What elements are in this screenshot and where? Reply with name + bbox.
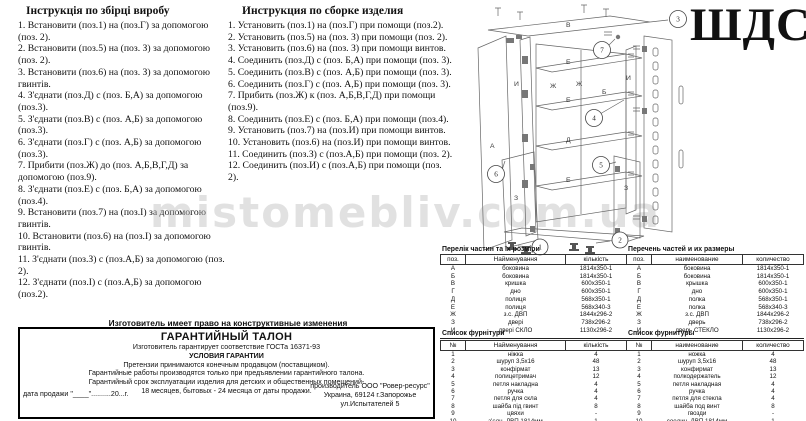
part-pos: В xyxy=(627,280,652,288)
callout-3: 3 xyxy=(670,11,687,28)
hardware-num: 8 xyxy=(627,403,652,410)
hardware-name: петля для стекла xyxy=(652,395,743,402)
hardware-row: 5 петля накладная 4 xyxy=(627,381,804,388)
hardware-qty: 1 xyxy=(743,418,804,421)
instruction-step: 10. Установить (поз.6) на (поз.И) при по… xyxy=(228,137,454,149)
part-name: з.с. ДВП xyxy=(652,311,743,319)
part-pos: З xyxy=(627,319,652,327)
parts-row: Г дно 600х350-1 xyxy=(627,288,804,296)
hardware-num: 8 xyxy=(441,403,466,410)
hardware-row: 1 нiжка 4 xyxy=(441,351,627,359)
part-size-qty: 1814х350-1 xyxy=(566,265,627,273)
instruction-step: 8. З'єднати (поз.Е) с (поз. Б,А) за допо… xyxy=(18,184,230,207)
hardware-num: 6 xyxy=(441,388,466,395)
instructions-ru-list: 1. Установить (поз.1) на (поз.Г) при пом… xyxy=(228,20,454,184)
header-pos: поз. xyxy=(441,255,466,265)
callout-circles: 3 7 4 5 6 1 2 xyxy=(488,11,687,256)
parts-table-ua: Перелік частин та їх розміри поз. Наймен… xyxy=(440,246,627,334)
parts-table-ru-title: Перечень частей и их размеры xyxy=(628,246,804,253)
sale-date-line: дата продажи "____"..........20...г. xyxy=(23,390,128,398)
part-pos: Г xyxy=(441,288,466,296)
header-num: № xyxy=(441,341,466,351)
part-pos: Б xyxy=(441,273,466,281)
instructions-ua-title: Інструкція по збірці виробу xyxy=(26,5,230,17)
part-pos: Ж xyxy=(627,311,652,319)
hardware-row: 5 петля накладна 4 xyxy=(441,381,627,388)
instruction-step: 1. Установить (поз.1) на (поз.Г) при пом… xyxy=(228,20,454,32)
hardware-row: 3 конфiрмат 13 xyxy=(441,366,627,373)
hardware-row: 6 ручка 4 xyxy=(441,388,627,395)
parts-row: Ж з.с. ДВП 1844х296-2 xyxy=(441,311,627,319)
label-shelf-low: Е xyxy=(566,177,571,184)
label-lower-door-left: З xyxy=(514,195,518,202)
manufacturer-address: Украина, 69124 г.Запорожье xyxy=(303,391,437,400)
part-size-qty: 568х350-1 xyxy=(566,296,627,304)
hardware-qty: 4 xyxy=(566,381,627,388)
hardware-num: 10 xyxy=(627,418,652,421)
hardware-name: полкодержатель xyxy=(652,373,743,380)
label-left-door: А xyxy=(490,143,495,150)
hardware-name: полицетримач xyxy=(466,373,566,380)
hardware-num: 5 xyxy=(441,381,466,388)
hardware-name: конфiрмат xyxy=(466,366,566,373)
parts-row: Д полка 568х350-1 xyxy=(627,296,804,304)
part-pos: Д xyxy=(441,296,466,304)
svg-text:7: 7 xyxy=(600,47,604,55)
instruction-step: 7. Прибити (поз.Ж) до (поз. А,Б,В,Г,Д) з… xyxy=(18,160,230,183)
header-qty: кількість xyxy=(566,341,627,351)
hardware-num: 4 xyxy=(441,373,466,380)
hardware-qty: 4 xyxy=(743,351,804,359)
hardware-num: 1 xyxy=(441,351,466,359)
hardware-row: 4 полицетримач 12 xyxy=(441,373,627,380)
part-name: дверь xyxy=(652,319,743,327)
part-size-qty: 1814х350-1 xyxy=(743,273,804,281)
svg-text:2: 2 xyxy=(618,237,622,245)
parts-table-ua-title: Перелік частин та їх розміри xyxy=(442,246,627,253)
part-size-qty: 600х350-1 xyxy=(566,288,627,296)
instruction-step: 12. З'єднати (поз.І) с (поз.А,Б) за допо… xyxy=(18,277,230,300)
label-lower-door-right: З xyxy=(624,185,628,192)
parts-row: З дверь 738х296-2 xyxy=(627,319,804,327)
left-door-panel xyxy=(478,36,512,250)
hardware-name: петля накладная xyxy=(652,381,743,388)
header-qty: кількість xyxy=(566,255,627,265)
part-pos: З xyxy=(441,319,466,327)
part-size-qty: 568х350-1 xyxy=(743,296,804,304)
manufacturer-name: производитель ООО "Ровер-ресурс" xyxy=(303,382,437,391)
part-name: дно xyxy=(652,288,743,296)
part-name: боковина xyxy=(466,265,566,273)
instruction-step: 5. З'єднати (поз.В) с (поз. А,Б) за допо… xyxy=(18,114,230,137)
instruction-step: 8. Соединить (поз.Е) с (поз. Б,А) при по… xyxy=(228,114,454,126)
hardware-table-ru: Список фурнитуры № наименование количест… xyxy=(626,330,804,421)
hardware-num: 7 xyxy=(627,395,652,402)
hardware-name: нiжка xyxy=(466,351,566,359)
hardware-row: 2 шуруп 3,5х16 48 xyxy=(627,358,804,365)
part-name: з.с. ДВП xyxy=(466,311,566,319)
part-size-qty: 600х350-1 xyxy=(743,288,804,296)
hardware-row: 9 цвяхи - xyxy=(441,410,627,417)
glass-door-hinge-marks xyxy=(633,46,640,219)
hardware-num: 5 xyxy=(627,381,652,388)
hinge-detail-marks xyxy=(604,32,612,35)
instruction-step: 6. З'єднати (поз.Г) с (поз. А,Б) за допо… xyxy=(18,137,230,160)
instruction-step: 11. З'єднати (поз.З) с (поз.А,Б) за допо… xyxy=(18,254,230,277)
warranty-card: ГАРАНТИЙНЫЙ ТАЛОН Изготовитель гарантиру… xyxy=(18,327,435,419)
parts-table-ru-header: поз. наименование количество xyxy=(627,255,804,265)
part-size-qty: 1814х350-1 xyxy=(743,265,804,273)
instruction-step: 4. Соединить (поз.Д) с (поз. Б,А) при по… xyxy=(228,55,454,67)
header-qty: количество xyxy=(743,341,804,351)
parts-row: В крышка 600х350-1 xyxy=(627,280,804,288)
hardware-qty: 48 xyxy=(743,358,804,365)
part-size-qty: 568х340-3 xyxy=(566,304,627,312)
warranty-title: ГАРАНТИЙНЫЙ ТАЛОН xyxy=(20,331,433,343)
parts-row: Б боковина 1814х350-1 xyxy=(441,273,627,281)
part-size-qty: 600х350-1 xyxy=(743,280,804,288)
instruction-step: 2. Встановити (поз.5) на (поз. З) за доп… xyxy=(18,43,230,66)
header-pos: поз. xyxy=(627,255,652,265)
handle-icon xyxy=(679,150,683,168)
callout-5: 5 xyxy=(593,157,610,174)
part-pos: Б xyxy=(627,273,652,281)
label-shelf-mid: Е xyxy=(566,97,571,104)
hardware-row: 9 гвозди - xyxy=(627,410,804,417)
hardware-row: 7 петля для стекла 4 xyxy=(627,395,804,402)
hardware-name: соедин. ДВП 1814мм xyxy=(652,418,743,421)
instruction-step: 3. Встановити (поз.6) на (поз. З) за доп… xyxy=(18,67,230,90)
part-pos: А xyxy=(627,265,652,273)
callout-4: 4 xyxy=(586,110,603,127)
part-size-qty: 1814х350-1 xyxy=(566,273,627,281)
hardware-qty: 1 xyxy=(566,418,627,421)
hardware-row: 8 шайба пiд гвинт 8 xyxy=(441,403,627,410)
instructions-ua: Інструкція по збірці виробу 1. Встановит… xyxy=(18,5,230,301)
part-name: крышка xyxy=(652,280,743,288)
part-size-qty: 1844х296-2 xyxy=(743,311,804,319)
hardware-num: 6 xyxy=(627,388,652,395)
svg-text:4: 4 xyxy=(592,115,596,123)
hardware-row: 4 полкодержатель 12 xyxy=(627,373,804,380)
instruction-step: 9. Установить (поз.7) на (поз.И) при пом… xyxy=(228,125,454,137)
hardware-num: 7 xyxy=(441,395,466,402)
hardware-row: 1 ножка 4 xyxy=(627,351,804,359)
instruction-step: 1. Встановити (поз.1) на (поз.Г) за допо… xyxy=(18,20,230,43)
shelf-pin-marks xyxy=(628,54,634,175)
warranty-gost-line: Изготовитель гарантирует соответствие ГО… xyxy=(20,343,433,352)
label-back-left: Ж xyxy=(550,83,557,90)
header-name: наименование xyxy=(652,341,743,351)
label-shelf-top: Е xyxy=(566,59,571,66)
instructions-ru: Инструкция по сборке изделия 1. Установи… xyxy=(228,5,454,184)
scanned-assembly-instruction-page: Інструкція по збірці виробу 1. Встановит… xyxy=(0,0,806,421)
part-name: полка xyxy=(652,296,743,304)
instruction-step: 2. Установить (поз.5) на (поз. З) при по… xyxy=(228,32,454,44)
part-pos: А xyxy=(441,265,466,273)
instruction-step: 9. Встановити (поз.7) на (поз.І) за допо… xyxy=(18,207,230,230)
hardware-row: 2 шуруп 3,5х16 48 xyxy=(441,358,627,365)
instruction-step: 11. Соединить (поз.З) с (поз.А,Б) при по… xyxy=(228,149,454,161)
hardware-name: шайба под винт xyxy=(652,403,743,410)
cabinet-exploded-view-icon: 3 7 4 5 6 1 2 В А Ж Ж И Б И Е Е Д Е З xyxy=(476,2,708,256)
part-size-qty: 600х350-1 xyxy=(566,280,627,288)
hardware-num: 2 xyxy=(627,358,652,365)
hardware-name: шуруп 3,5х16 xyxy=(652,358,743,365)
instruction-step: 3. Установить (поз.6) на (поз. З) при по… xyxy=(228,43,454,55)
header-name: наименование xyxy=(652,255,743,265)
part-pos: Ж xyxy=(441,311,466,319)
hardware-row: 8 шайба под винт 8 xyxy=(627,403,804,410)
hardware-qty: 4 xyxy=(743,388,804,395)
hardware-qty: 4 xyxy=(566,388,627,395)
instructions-ru-title: Инструкция по сборке изделия xyxy=(242,5,454,17)
hardware-qty: 12 xyxy=(743,373,804,380)
part-name: боковина xyxy=(466,273,566,281)
hardware-row: 10 з'єдн. ДВП 1814мм 1 xyxy=(441,418,627,421)
hardware-num: 4 xyxy=(627,373,652,380)
part-name: дверi xyxy=(466,319,566,327)
hardware-row: 3 конфирмат 13 xyxy=(627,366,804,373)
part-pos: Г xyxy=(627,288,652,296)
pin-hole-column xyxy=(653,48,658,224)
parts-row: А боковина 1814х350-1 xyxy=(441,265,627,273)
part-name: боковина xyxy=(652,265,743,273)
part-pos: Д xyxy=(627,296,652,304)
label-top-panel: В xyxy=(566,22,571,29)
hardware-table-ru-header: № наименование количество xyxy=(627,341,804,351)
label-right-side: Б xyxy=(602,89,607,96)
part-pos: В xyxy=(441,280,466,288)
hardware-qty: 4 xyxy=(743,381,804,388)
instruction-step: 12. Соединить (поз.И) с (поз.А,Б) при по… xyxy=(228,160,454,183)
hardware-name: петля для скла xyxy=(466,395,566,402)
parts-table-ua-header: поз. Найменування кількість xyxy=(441,255,627,265)
hardware-table-ua: Список фурнітури № Найменування кількіст… xyxy=(440,330,627,421)
hardware-num: 2 xyxy=(441,358,466,365)
part-name: дно xyxy=(466,288,566,296)
parts-row: Е полиця 568х340-3 xyxy=(441,304,627,312)
hardware-row: 7 петля для скла 4 xyxy=(441,395,627,402)
hardware-qty: 4 xyxy=(566,351,627,359)
manufacturer-block: производитель ООО "Ровер-ресурс" Украина… xyxy=(303,382,437,410)
part-size-qty: 1844х296-2 xyxy=(566,311,627,319)
hardware-table-ru-title: Список фурнитуры xyxy=(626,330,804,339)
hardware-qty: - xyxy=(566,410,627,417)
hardware-name: шайба пiд гвинт xyxy=(466,403,566,410)
header-num: № xyxy=(627,341,652,351)
hardware-table-ua-header: № Найменування кількість xyxy=(441,341,627,351)
hardware-row: 10 соедин. ДВП 1814мм 1 xyxy=(627,418,804,421)
hardware-row: 6 ручка 4 xyxy=(627,388,804,395)
part-size-qty: 568х340-3 xyxy=(743,304,804,312)
hardware-num: 3 xyxy=(627,366,652,373)
hardware-num: 9 xyxy=(441,410,466,417)
instruction-step: 10. Встановити (поз.6) на (поз.І) за доп… xyxy=(18,231,230,254)
hardware-num: 9 xyxy=(627,410,652,417)
header-name: Найменування xyxy=(466,341,566,351)
part-size-qty: 738х296-2 xyxy=(743,319,804,327)
hardware-table-ua-title: Список фурнітури xyxy=(440,330,627,339)
label-glass-door: И xyxy=(626,75,631,82)
svg-text:6: 6 xyxy=(494,171,498,179)
hardware-name: ножка xyxy=(652,351,743,359)
handle-icon xyxy=(679,86,683,104)
warranty-line: Гарантийные работы производятся только п… xyxy=(20,369,433,378)
callout-6: 6 xyxy=(488,166,505,183)
parts-row: Г дно 600х350-1 xyxy=(441,288,627,296)
hardware-qty: 48 xyxy=(566,358,627,365)
label-back-right: Ж xyxy=(576,81,583,88)
hardware-name: цвяхи xyxy=(466,410,566,417)
instruction-step: 4. З'єднати (поз.Д) с (поз. Б,А) за допо… xyxy=(18,90,230,113)
label-inner-door: И xyxy=(514,81,519,88)
hardware-name: ручка xyxy=(652,388,743,395)
part-name: полиця xyxy=(466,304,566,312)
parts-row: З дверi 738х296-2 xyxy=(441,319,627,327)
parts-row: В кришка 600х350-1 xyxy=(441,280,627,288)
callout-7: 7 xyxy=(594,42,611,59)
part-name: боковина xyxy=(652,273,743,281)
part-name: кришка xyxy=(466,280,566,288)
hardware-name: ручка xyxy=(466,388,566,395)
part-name: полка xyxy=(652,304,743,312)
hardware-qty: 4 xyxy=(566,395,627,402)
hardware-name: гвозди xyxy=(652,410,743,417)
hardware-qty: 12 xyxy=(566,373,627,380)
svg-text:3: 3 xyxy=(676,16,680,24)
svg-text:5: 5 xyxy=(599,162,603,170)
label-shelf-d: Д xyxy=(566,137,571,144)
hardware-qty: 13 xyxy=(566,366,627,373)
hardware-num: 1 xyxy=(627,351,652,359)
instruction-step: 5. Соединить (поз.В) с (поз. А,Б) при по… xyxy=(228,67,454,79)
hardware-num: 10 xyxy=(441,418,466,421)
hardware-qty: 8 xyxy=(566,403,627,410)
warranty-line: Претензии принимаются конечным продавцом… xyxy=(20,361,433,370)
part-name: полиця xyxy=(466,296,566,304)
hardware-name: шуруп 3,5х16 xyxy=(466,358,566,365)
parts-row: Ж з.с. ДВП 1844х296-2 xyxy=(627,311,804,319)
instruction-step: 7. Прибить (поз.Ж) к (поз. А,Б,В,Г,Д) пр… xyxy=(228,90,454,113)
hardware-name: петля накладна xyxy=(466,381,566,388)
part-size-qty: 738х296-2 xyxy=(566,319,627,327)
hardware-qty: 13 xyxy=(743,366,804,373)
header-name: Найменування xyxy=(466,255,566,265)
hardware-qty: - xyxy=(743,410,804,417)
parts-row: Б боковина 1814х350-1 xyxy=(627,273,804,281)
hardware-name: конфирмат xyxy=(652,366,743,373)
hardware-qty: 4 xyxy=(743,395,804,402)
parts-row: Д полиця 568х350-1 xyxy=(441,296,627,304)
header-qty: количество xyxy=(743,255,804,265)
parts-row: А боковина 1814х350-1 xyxy=(627,265,804,273)
hardware-num: 3 xyxy=(441,366,466,373)
manufacturer-street: ул.Испытателей 5 xyxy=(303,400,437,409)
instructions-ua-list: 1. Встановити (поз.1) на (поз.Г) за допо… xyxy=(18,20,230,301)
hardware-qty: 8 xyxy=(743,403,804,410)
parts-table-ru: Перечень частей и их размеры поз. наимен… xyxy=(626,246,804,334)
part-pos: Е xyxy=(627,304,652,312)
cabinet-drawing: 3 7 4 5 6 1 2 В А Ж Ж И Б И Е Е Д Е З xyxy=(476,2,708,256)
part-pos: Е xyxy=(441,304,466,312)
hardware-name: з'єдн. ДВП 1814мм xyxy=(466,418,566,421)
parts-row: Е полка 568х340-3 xyxy=(627,304,804,312)
instruction-step: 6. Соединить (поз.Г) с (поз. А,Б) при по… xyxy=(228,79,454,91)
warranty-conditions-subtitle: УСЛОВИЯ ГАРАНТИИ xyxy=(20,352,433,361)
